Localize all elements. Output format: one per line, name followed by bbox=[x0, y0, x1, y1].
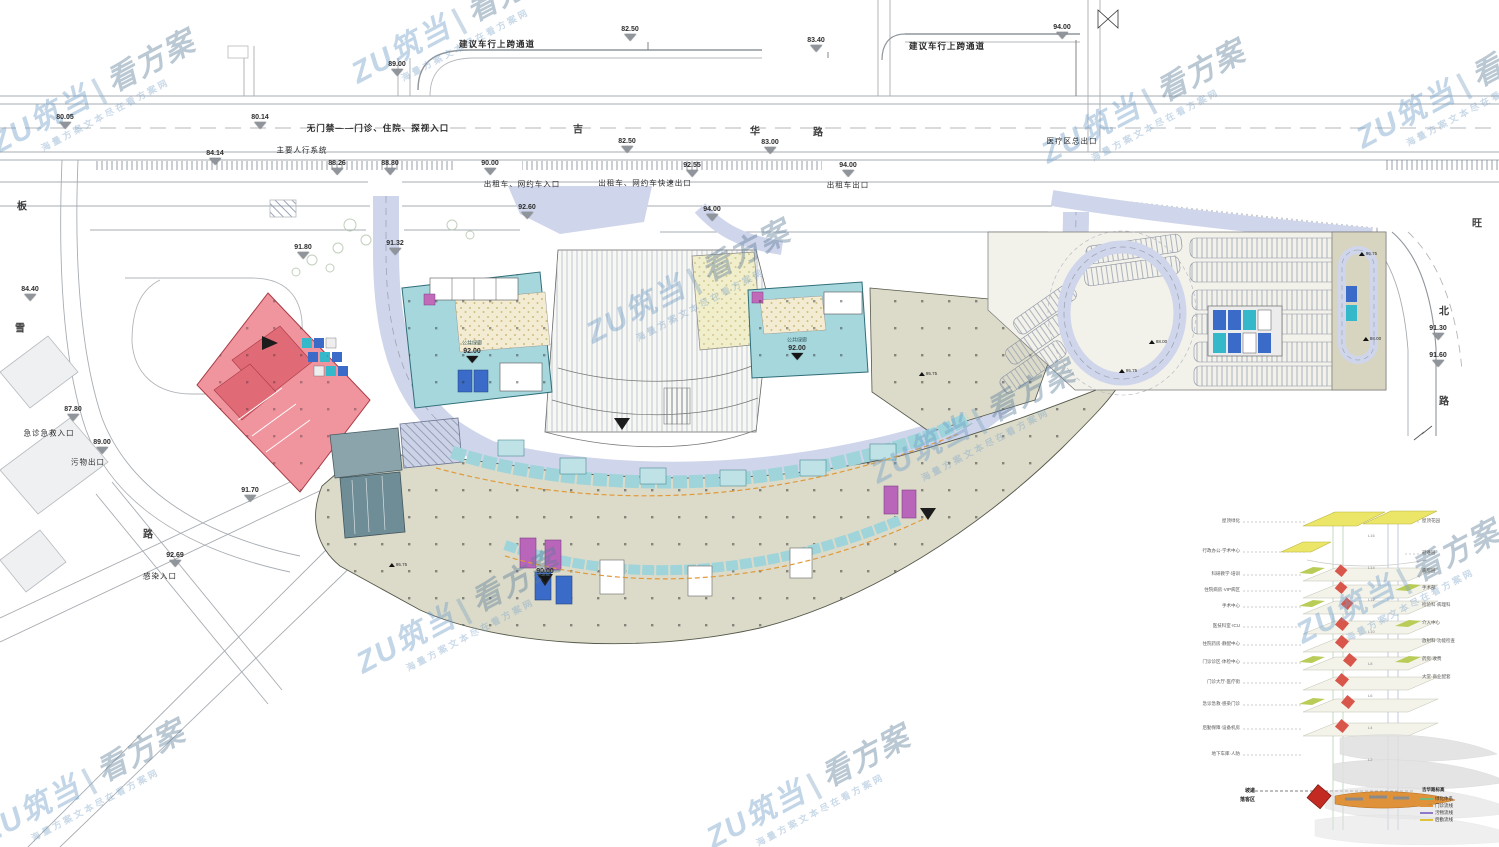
level-triangle-icon bbox=[24, 294, 36, 301]
level-triangle-icon bbox=[764, 147, 776, 154]
elevation-marker: 90.00 bbox=[481, 160, 499, 175]
elevation-marker: 94.00 bbox=[839, 162, 857, 177]
stack-right-label: 药房·收费 bbox=[1422, 657, 1442, 662]
green-corridor-label-west: 公共绿廊 bbox=[462, 340, 482, 347]
stack-right-label: 病房层 bbox=[1422, 569, 1436, 574]
level-triangle-icon bbox=[539, 576, 551, 583]
crosswalk bbox=[664, 388, 690, 424]
elevation-marker: 82.50 bbox=[618, 138, 636, 153]
legend-item: 门诊流线 bbox=[1420, 804, 1453, 809]
elevation-marker: 83.40 bbox=[807, 37, 825, 52]
emergency-entrance-label: 急诊急救入口 bbox=[24, 428, 75, 439]
gate-icon bbox=[1098, 10, 1118, 28]
legend-item: 绿化体系 bbox=[1420, 797, 1453, 802]
stack-right-label: 避难层 bbox=[1422, 551, 1436, 556]
overpass-label-east: 建议车行上跨通道 bbox=[909, 40, 985, 52]
elevation-marker: 80.05 bbox=[56, 114, 74, 129]
level-triangle-icon bbox=[254, 122, 266, 129]
floor-tag: L14 bbox=[1368, 566, 1375, 570]
stack-left-label: 地下车库·人防 bbox=[1170, 752, 1240, 757]
level-triangle-icon bbox=[1056, 32, 1068, 39]
stack-bottom-label: 落客区 bbox=[1205, 798, 1255, 803]
level-triangle-icon bbox=[521, 212, 533, 219]
elevation-marker: 88.26 bbox=[328, 160, 346, 175]
elevation-marker: 94.00 bbox=[703, 206, 721, 221]
floor-tag: L12 bbox=[1368, 598, 1375, 602]
spot-elevation: 95.75 bbox=[919, 372, 937, 377]
spot-triangle-icon bbox=[389, 563, 395, 567]
elevation-marker: 94.00 bbox=[1053, 24, 1071, 39]
level-triangle-icon bbox=[466, 356, 478, 363]
floor-tag: L10 bbox=[1368, 630, 1375, 634]
road-name-southwest: 路 bbox=[143, 526, 153, 541]
elevation-marker: 83.00 bbox=[761, 139, 779, 154]
level-triangle-icon bbox=[169, 560, 181, 567]
taxi-entrance-label: 出租车、网约车入口 bbox=[484, 179, 561, 190]
parking-area bbox=[988, 231, 1386, 396]
waste-exit-label: 污物出口 bbox=[71, 457, 105, 468]
level-triangle-icon bbox=[244, 495, 256, 502]
level-triangle-icon bbox=[1432, 360, 1444, 367]
elevation-marker: 89.00 bbox=[388, 61, 406, 76]
spot-triangle-icon bbox=[1359, 252, 1365, 256]
site-plan-canvas: ZU筑当|看方案 海量方案文本尽在看方案网 ZU筑当|看方案 海量方案文本尽在看… bbox=[0, 0, 1499, 847]
level-triangle-icon bbox=[331, 168, 343, 175]
stack-right-label: 检验科·病理科 bbox=[1422, 603, 1451, 608]
legend-swatch bbox=[1420, 798, 1433, 800]
level-triangle-icon bbox=[389, 248, 401, 255]
spot-elevation: 95.75 bbox=[1119, 369, 1137, 374]
elevation-marker: 80.14 bbox=[251, 114, 269, 129]
road-name-east: 旺 bbox=[1472, 215, 1482, 230]
legend-swatch bbox=[1420, 805, 1433, 807]
elevation-marker: 91.60 bbox=[1429, 352, 1447, 367]
legend-swatch bbox=[1420, 812, 1433, 814]
level-triangle-icon bbox=[391, 69, 403, 76]
floor-tag: L4 bbox=[1368, 726, 1372, 730]
legend-item: 污物流线 bbox=[1420, 811, 1453, 816]
pedestrian-hatch-far-right bbox=[1386, 160, 1499, 170]
stack-left-label: 后勤保障·设备机房 bbox=[1170, 726, 1240, 731]
legend-swatch bbox=[1420, 819, 1433, 821]
elevation-marker: 91.32 bbox=[386, 240, 404, 255]
fan-hall bbox=[545, 250, 770, 447]
no-gate-entrance-label: 无门禁——门诊、住院、探视入口 bbox=[307, 122, 450, 134]
elevation-marker: 92.69 bbox=[166, 552, 184, 567]
stack-left-label: 门诊诊区·体检中心 bbox=[1170, 660, 1240, 665]
stack-right-label: 大堂·商业配套 bbox=[1422, 675, 1451, 680]
stacking-diagram bbox=[1243, 511, 1499, 845]
elevation-marker: 89.00 bbox=[93, 439, 111, 454]
level-triangle-icon bbox=[810, 45, 822, 52]
level-triangle-icon bbox=[384, 168, 396, 175]
level-triangle-icon bbox=[59, 122, 71, 129]
level-triangle-icon bbox=[791, 353, 803, 360]
legend-item: 后勤流线 bbox=[1420, 818, 1453, 823]
medical-exit-label: 医疗区总出口 bbox=[1047, 136, 1098, 147]
level-triangle-icon bbox=[624, 34, 636, 41]
road-name-jihua: 路 bbox=[813, 124, 823, 139]
stack-left-label: 住院病房·VIP病区 bbox=[1170, 588, 1240, 593]
stack-right-label: 吉华路标高 bbox=[1422, 788, 1445, 793]
stack-left-label: 医技科室·ICU bbox=[1170, 624, 1240, 629]
elevation-marker: 82.50 bbox=[621, 26, 639, 41]
elevation-marker: 84.40 bbox=[21, 286, 39, 301]
level-triangle-icon bbox=[484, 168, 496, 175]
stack-left-label: 住院药房·静配中心 bbox=[1170, 642, 1240, 647]
elevation-marker: 87.80 bbox=[64, 406, 82, 421]
level-triangle-icon bbox=[67, 414, 79, 421]
level-triangle-icon bbox=[1432, 333, 1444, 340]
spot-triangle-icon bbox=[1149, 340, 1155, 344]
elevation-marker: 92.00 bbox=[463, 348, 481, 363]
road-name-jihua: 华 bbox=[750, 123, 760, 138]
spot-elevation: 95.75 bbox=[389, 563, 407, 568]
road-name-east: 北 bbox=[1439, 303, 1449, 318]
inpatient-tower-east bbox=[748, 282, 868, 378]
stack-right-label: 手术部 bbox=[1422, 586, 1436, 591]
level-triangle-icon bbox=[209, 158, 221, 165]
stack-right-label: 放射科·功能检查 bbox=[1422, 639, 1455, 644]
elevation-marker: 90.00 bbox=[536, 568, 554, 583]
road-name-west: 板 bbox=[17, 198, 27, 213]
spot-elevation: 88.00 bbox=[1149, 340, 1167, 345]
green-corridor-label-east: 公共绿廊 bbox=[787, 337, 807, 344]
pedestrian-hatch-center bbox=[522, 161, 822, 170]
stack-left-label: 手术中心 bbox=[1170, 604, 1240, 609]
taxi-fast-exit-label: 出租车、网约车快速出口 bbox=[598, 178, 692, 189]
taxi-exit-label: 出租车出口 bbox=[827, 180, 870, 191]
floor-tag: L8 bbox=[1368, 662, 1372, 666]
spot-triangle-icon bbox=[919, 372, 925, 376]
spot-elevation: 95.75 bbox=[1359, 252, 1377, 257]
elevation-marker: 92.55 bbox=[683, 162, 701, 177]
overpass-label-west: 建议车行上跨通道 bbox=[459, 38, 535, 50]
road-name-east: 路 bbox=[1439, 393, 1449, 408]
stack-bottom-label: 坡道 bbox=[1205, 789, 1255, 794]
level-triangle-icon bbox=[842, 170, 854, 177]
spot-elevation: 88.00 bbox=[1363, 337, 1381, 342]
level-triangle-icon bbox=[96, 447, 108, 454]
elevation-marker: 88.80 bbox=[381, 160, 399, 175]
level-triangle-icon bbox=[686, 170, 698, 177]
floor-tag: L6 bbox=[1368, 694, 1372, 698]
stack-right-label: 屋顶花园 bbox=[1422, 519, 1440, 524]
spot-triangle-icon bbox=[1119, 369, 1125, 373]
elevation-marker: 92.60 bbox=[518, 204, 536, 219]
elevation-marker: 84.14 bbox=[206, 150, 224, 165]
infection-entrance-label: 感染入口 bbox=[143, 571, 177, 582]
pedestrian-hatch-left bbox=[95, 161, 455, 170]
stack-left-label: 门诊大厅·医疗街 bbox=[1170, 680, 1240, 685]
level-triangle-icon bbox=[297, 252, 309, 259]
elevation-marker: 91.80 bbox=[294, 244, 312, 259]
elevation-marker: 92.00 bbox=[788, 345, 806, 360]
stack-left-label: 屋顶绿化 bbox=[1170, 519, 1240, 524]
level-triangle-icon bbox=[621, 146, 633, 153]
road-name-west: 雪 bbox=[15, 320, 25, 335]
road-name-jihua: 吉 bbox=[573, 121, 583, 136]
stack-left-label: 行政办公·学术中心 bbox=[1170, 549, 1240, 554]
floor-tag: L16 bbox=[1368, 534, 1375, 538]
elevation-marker: 91.30 bbox=[1429, 325, 1447, 340]
level-triangle-icon bbox=[706, 214, 718, 221]
spot-triangle-icon bbox=[1363, 337, 1369, 341]
elevation-marker: 91.70 bbox=[241, 487, 259, 502]
stack-left-label: 急诊急救·感染门诊 bbox=[1170, 702, 1240, 707]
pedestrian-system-label: 主要人行系统 bbox=[277, 145, 328, 156]
stack-right-label: 介入中心 bbox=[1422, 621, 1440, 626]
stack-left-label: 科研教学·培训 bbox=[1170, 572, 1240, 577]
floor-tag: L2 bbox=[1368, 758, 1372, 762]
